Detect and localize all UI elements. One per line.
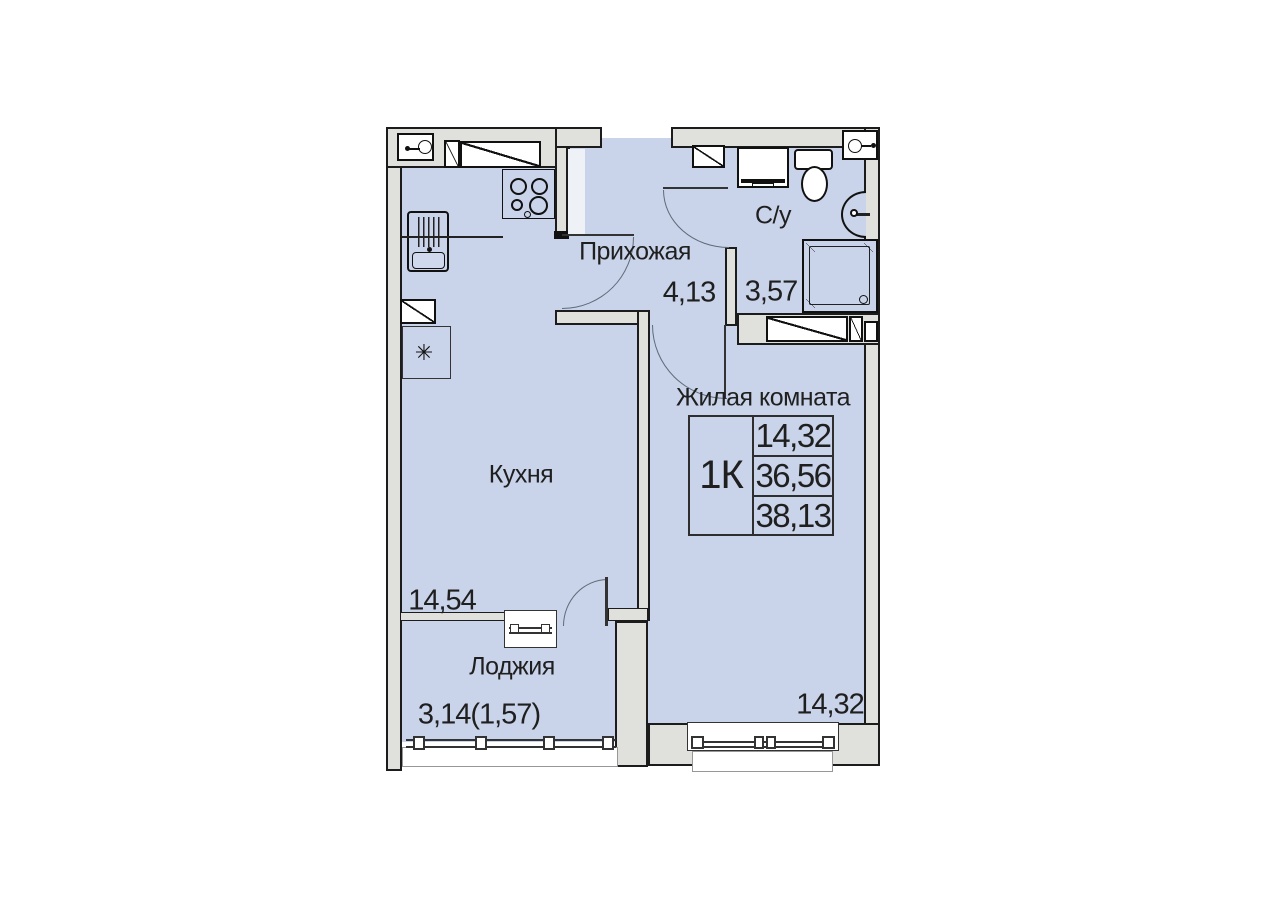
- kitchen-window-slant-icon: [444, 140, 460, 168]
- living-window-mullion: [822, 736, 835, 749]
- bathroom-door-leaf: [663, 187, 728, 189]
- wall-kitchen-living: [637, 310, 650, 621]
- side-window-icon: [766, 316, 848, 342]
- faucet-dot: [850, 209, 858, 217]
- wall-top-hallway: [555, 127, 602, 148]
- loggia-mullion: [475, 736, 487, 750]
- toilet-bowl-icon: [801, 166, 828, 202]
- living-area: 14,32: [796, 689, 864, 722]
- hallway-area: 4,13: [663, 277, 715, 310]
- faucet-line: [856, 213, 870, 216]
- kitchen-sink-icon: [407, 211, 449, 272]
- loggia-label: Лоджия: [469, 653, 555, 682]
- balcony-door-leaf: [605, 577, 608, 626]
- shower-icon: [802, 239, 878, 313]
- living-window-mullion: [766, 736, 776, 749]
- floor-plan: ✳: [0, 0, 1280, 904]
- wall-bathroom-left: [725, 247, 737, 326]
- hallway-label: Прихожая: [579, 238, 691, 267]
- wall-balcony-stub: [608, 608, 648, 621]
- side-window-square-icon: [864, 321, 878, 342]
- total-area-value: 38,13: [754, 497, 832, 535]
- counter-edge: [402, 236, 503, 238]
- living-area-value: 36,56: [754, 457, 832, 497]
- kitchen-door-leaf: [562, 234, 634, 236]
- kitchen-window-icon: [460, 141, 541, 168]
- wall-hallway-bottom: [555, 310, 650, 325]
- bathroom-transom-icon: [692, 145, 725, 168]
- vent-icon-right: [842, 130, 878, 160]
- living-window-mullion: [691, 736, 704, 749]
- vent-icon: [397, 133, 434, 161]
- fridge-symbol: ✳: [415, 340, 433, 366]
- loggia-area: 3,14(1,57): [418, 699, 540, 732]
- loggia-mullion: [413, 736, 425, 750]
- loggia-mullion: [543, 736, 555, 750]
- apartment-type: 1К: [690, 417, 754, 534]
- loggia-sill: [402, 747, 618, 767]
- living-window-mullion: [754, 736, 764, 749]
- loggia-mullion: [602, 736, 614, 750]
- bathroom-area: 3,57: [745, 276, 797, 309]
- balcony-window-icon: [504, 610, 557, 648]
- wall-right: [864, 127, 880, 766]
- kitchen-label: Кухня: [489, 461, 553, 490]
- living-label: Жилая комната: [676, 384, 850, 413]
- vent-hatch-icon: [400, 299, 436, 324]
- apartment-info-table: 1К 14,32 36,56 38,13: [688, 415, 834, 536]
- wall-kitchen-hallway: [555, 146, 568, 238]
- side-window-slant-icon: [849, 316, 863, 342]
- wall-loggia-living-divider: [615, 621, 648, 767]
- stove-icon: [502, 169, 555, 219]
- duct-strip: [568, 149, 585, 236]
- living-window-sill: [692, 751, 833, 772]
- bathroom-label: С/у: [755, 202, 791, 231]
- kitchen-area: 14,54: [408, 585, 476, 618]
- loggia-glazing: [406, 739, 616, 748]
- room-area-value: 14,32: [754, 417, 832, 457]
- wall-left: [386, 127, 402, 771]
- washing-machine-icon: [737, 147, 789, 188]
